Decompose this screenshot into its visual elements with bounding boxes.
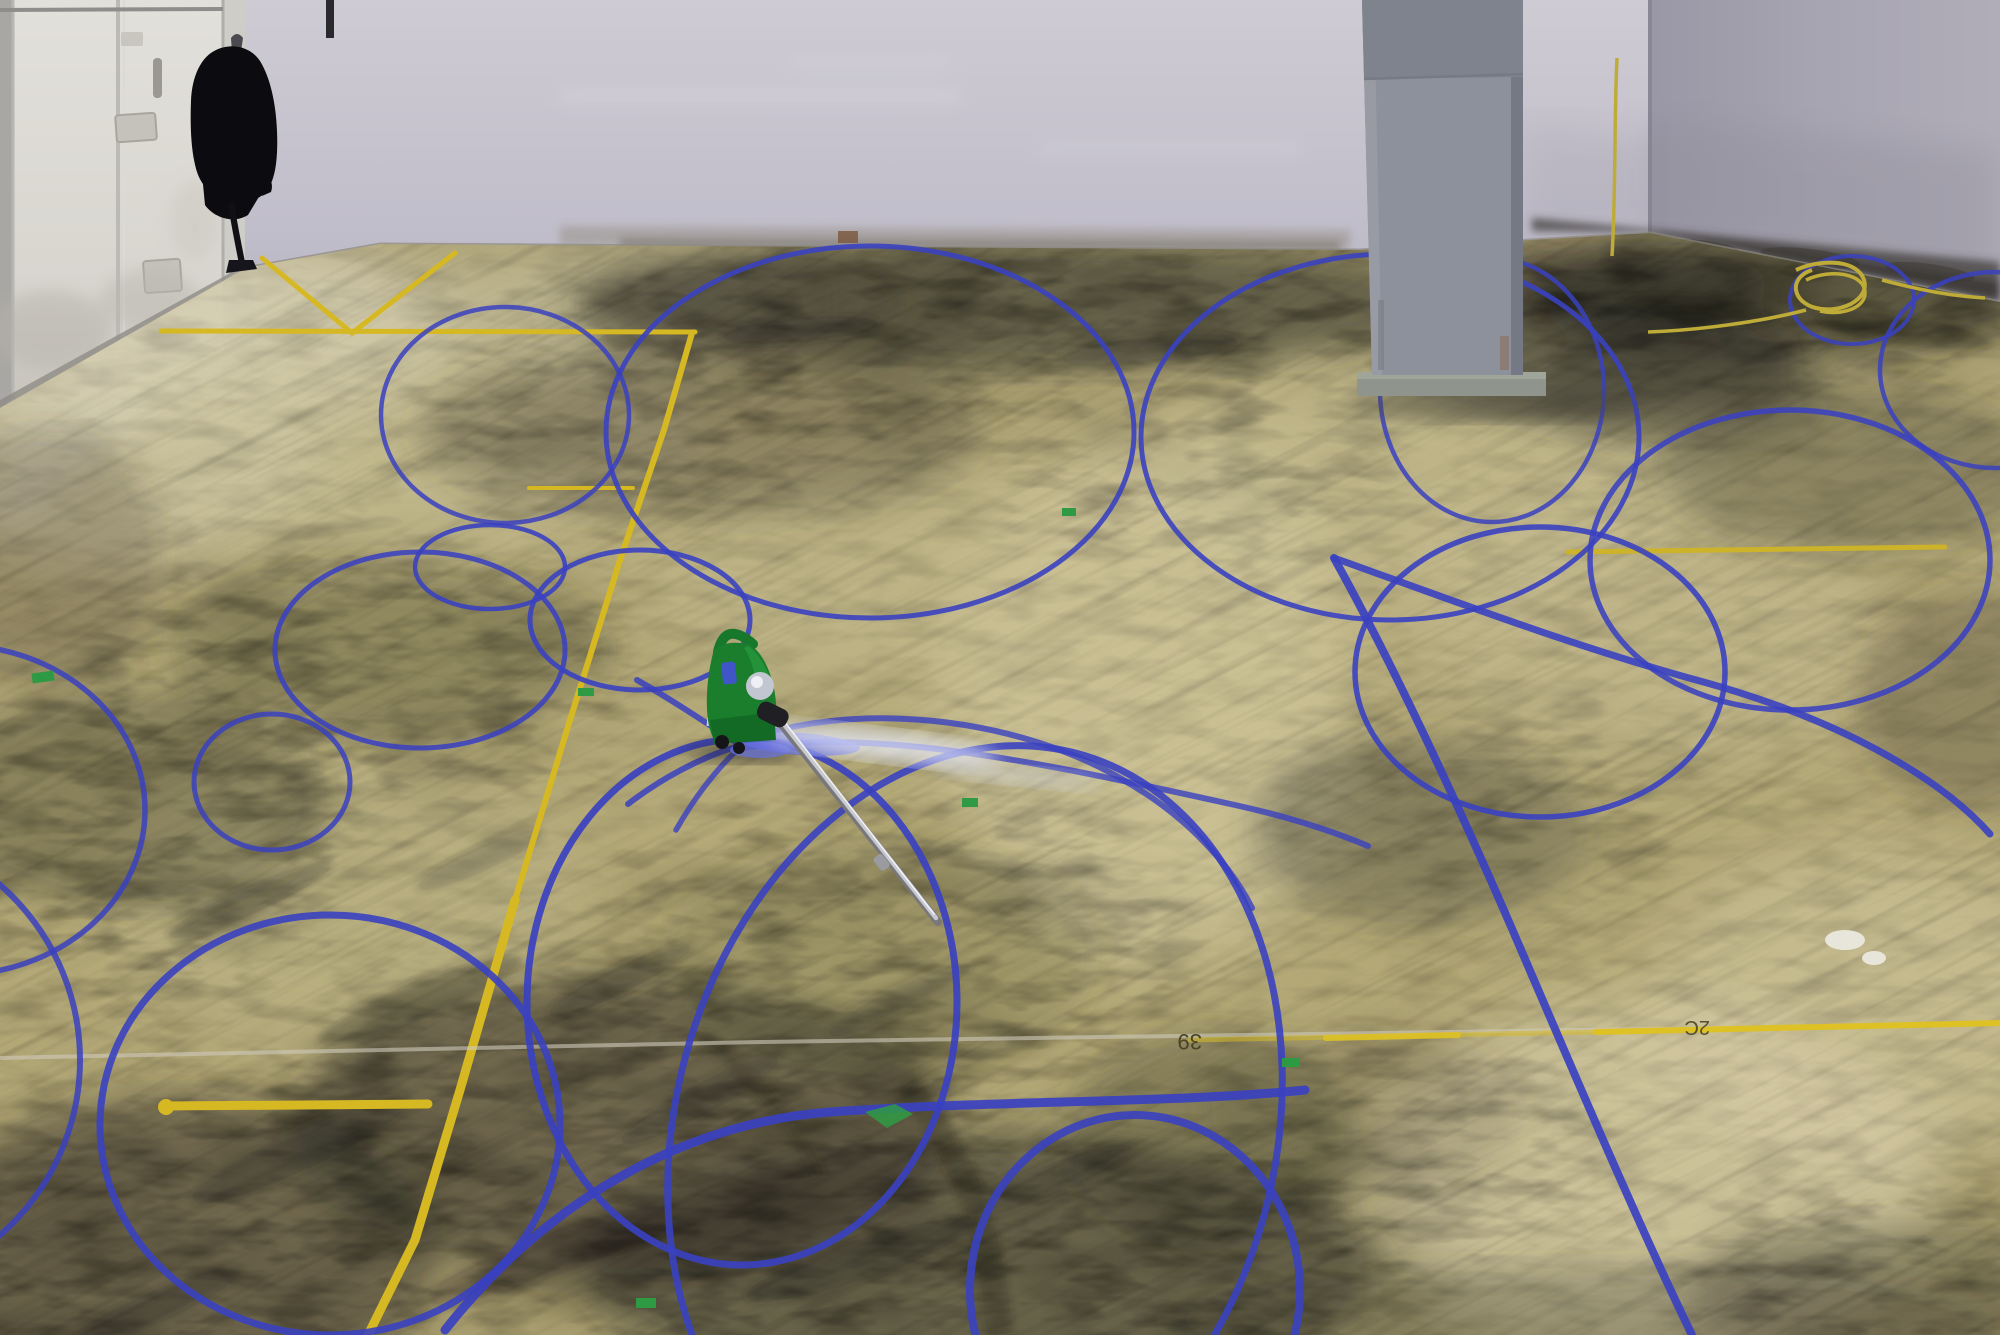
svg-text:39: 39	[1178, 1029, 1202, 1054]
svg-text:2C: 2C	[1684, 1016, 1710, 1038]
